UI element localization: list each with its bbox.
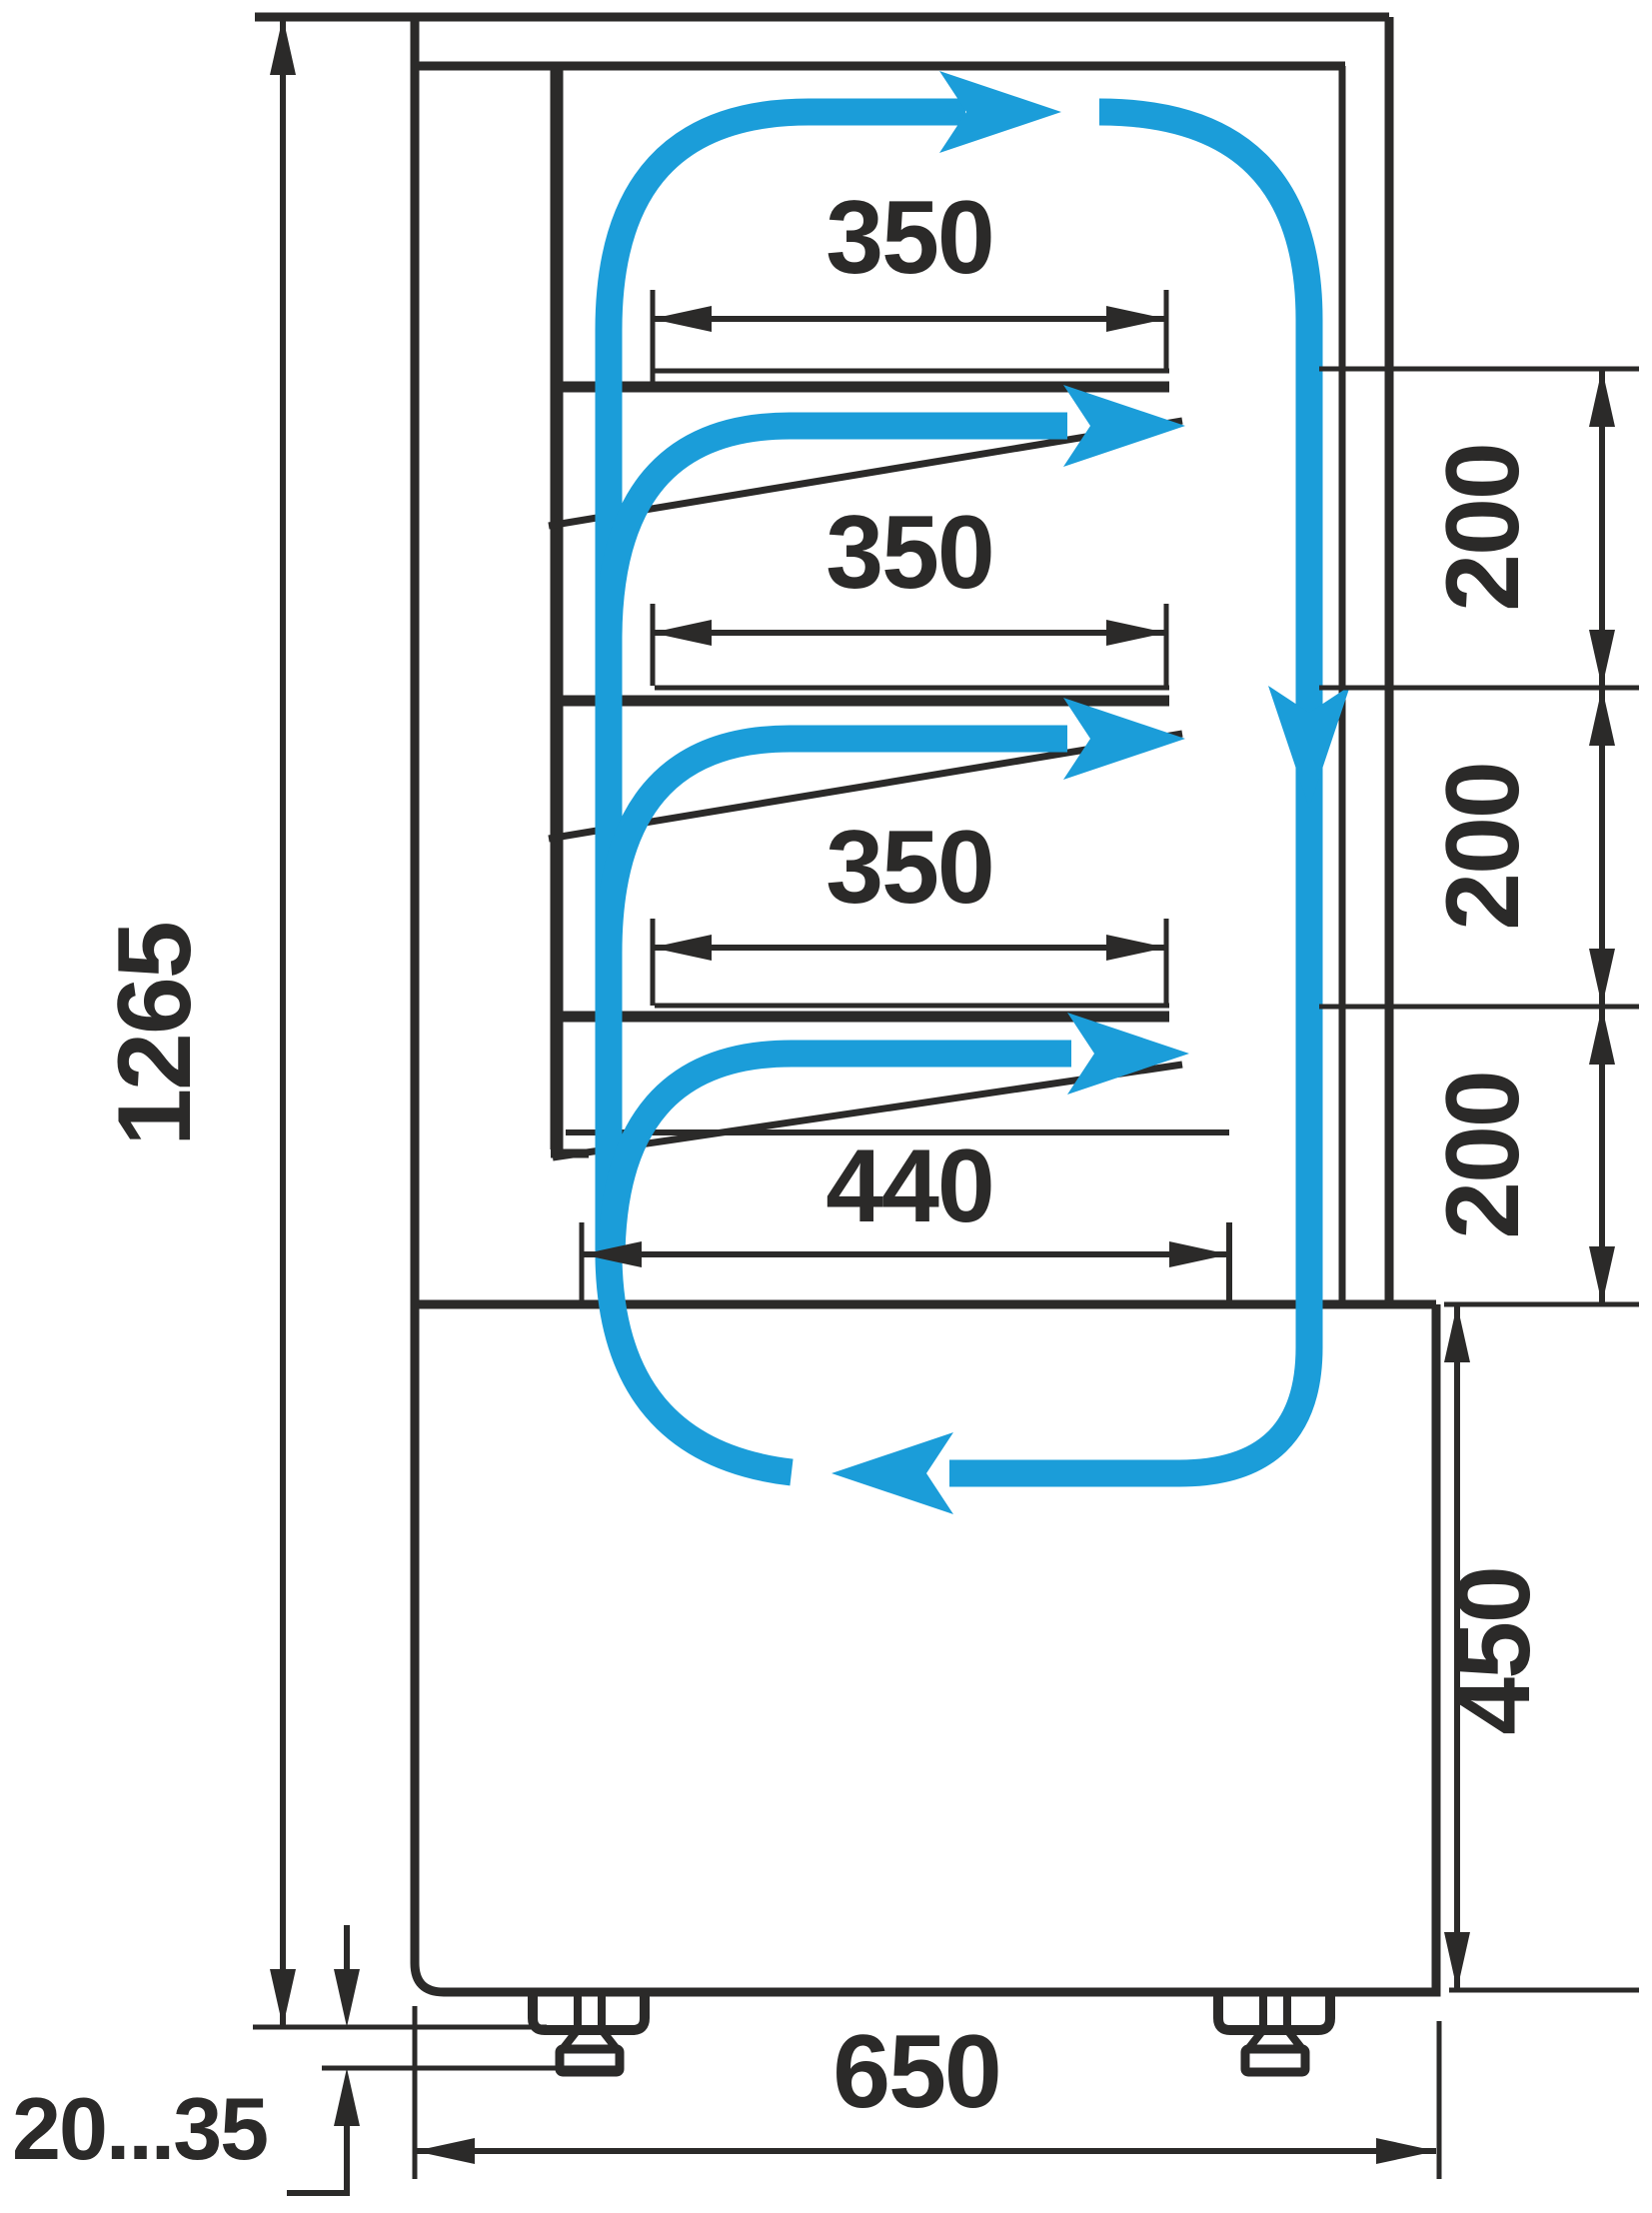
arrow-350-2-right-icon — [1106, 620, 1166, 646]
arrow-2035-down-icon — [334, 1969, 360, 2027]
arrow-1265-down-icon — [270, 1969, 296, 2027]
arrow-200-1-down-icon — [1589, 630, 1615, 688]
arrow-650-right-icon — [1376, 2138, 1436, 2164]
arrow-350-1-left-icon — [652, 306, 712, 332]
arrow-650-left-icon — [415, 2138, 475, 2164]
label-shelf-depth-2: 350 — [826, 495, 993, 611]
label-overall-depth: 650 — [832, 2014, 1000, 2130]
drawing-canvas: 350 350 350 440 650 1265 200 200 200 450… — [0, 0, 1652, 2213]
label-overall-height: 1265 — [97, 923, 213, 1145]
arrow-350-3-right-icon — [1106, 935, 1166, 961]
dimension-arrowheads — [270, 17, 1615, 2164]
arrow-200-3-up-icon — [1589, 1007, 1615, 1065]
ext-350-3 — [653, 919, 1166, 1006]
arrow-450-up-icon — [1444, 1304, 1470, 1362]
dimline-2035-leader — [287, 1925, 347, 2193]
label-shelf-gap-1: 200 — [1425, 444, 1541, 612]
arrow-200-2-down-icon — [1589, 949, 1615, 1007]
arrow-1265-up-icon — [270, 17, 296, 75]
arrow-200-2-up-icon — [1589, 688, 1615, 746]
arrow-350-3-left-icon — [652, 935, 712, 961]
right-foot-bolt — [1263, 1992, 1287, 2030]
airflow-arrow-shelf2-icon — [1063, 698, 1185, 780]
arrow-200-1-up-icon — [1589, 369, 1615, 427]
airflow-arrow-shelf1-icon — [1063, 385, 1185, 467]
right-foot-plate — [1245, 2049, 1305, 2072]
left-foot-block — [533, 1992, 645, 2030]
label-shelf-depth-1: 350 — [826, 180, 993, 296]
arrow-2035-up-icon — [334, 2068, 360, 2126]
ext-350-2 — [653, 604, 1166, 688]
dimensions: 350 350 350 440 650 1265 200 200 200 450… — [12, 17, 1639, 2193]
label-shelf-gap-3: 200 — [1425, 1072, 1541, 1239]
arrow-350-1-right-icon — [1106, 306, 1166, 332]
arrow-200-3-down-icon — [1589, 1246, 1615, 1304]
label-base-height: 450 — [1436, 1567, 1552, 1735]
airflow-arrow-well-icon — [1067, 1013, 1189, 1095]
left-foot-bolt — [578, 1992, 602, 2030]
right-foot-block — [1218, 1992, 1330, 2030]
label-shelf-depth-3: 350 — [826, 810, 993, 926]
arrow-440-right-icon — [1169, 1241, 1229, 1267]
technical-drawing: 350 350 350 440 650 1265 200 200 200 450… — [0, 0, 1652, 2213]
airflow-arrow-return-icon — [831, 1432, 953, 1514]
label-well-depth: 440 — [826, 1128, 993, 1244]
label-shelf-gap-2: 200 — [1425, 763, 1541, 931]
arrow-350-2-left-icon — [652, 620, 712, 646]
label-foot-adjust: 20...35 — [12, 2079, 267, 2178]
arrow-450-down-icon — [1444, 1932, 1470, 1990]
cabinet-structure — [255, 17, 1436, 1992]
